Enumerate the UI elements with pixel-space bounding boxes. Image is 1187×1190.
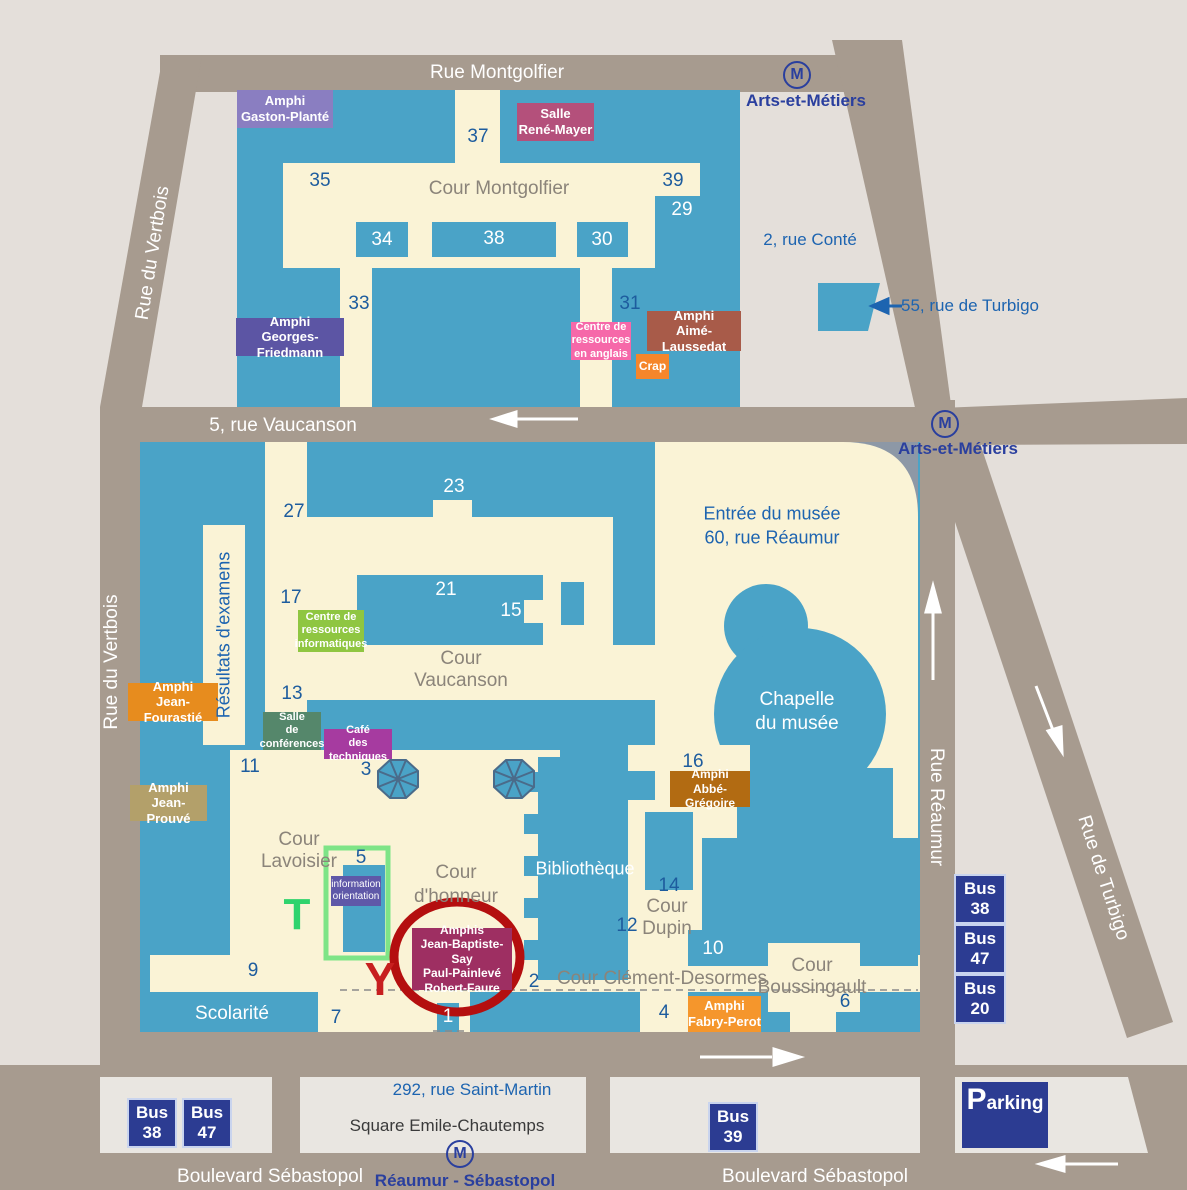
- label-cour-lavoisier-1: Cour: [278, 829, 319, 851]
- label-metro-arts-et-metiers-top: Arts-et-Métiers: [746, 91, 866, 111]
- venue-cafe-des-techniques: Cafédes techniques: [324, 729, 392, 759]
- bus-stop-38-right: Bus38: [954, 874, 1006, 924]
- bib-tooth-2: [524, 814, 540, 834]
- dome-base: [737, 768, 893, 838]
- number-3: 3: [361, 759, 372, 781]
- street-rue-du-vertbois-bottom: [100, 442, 140, 1068]
- label-cour-vaucanson-1: Cour: [440, 648, 481, 670]
- number-9: 9: [248, 960, 259, 982]
- number-34: 34: [371, 229, 392, 251]
- number-1: 1: [443, 1006, 454, 1028]
- label-scolarite: Scolarité: [195, 1003, 269, 1025]
- number-2: 2: [529, 971, 540, 993]
- venue-amphi-fabry-perot: AmphiFabry-Perot: [688, 996, 761, 1032]
- number-4: 4: [659, 1002, 670, 1024]
- label-boulevard-sebastopol-left: Boulevard Sébastopol: [177, 1166, 363, 1188]
- label-entree-musee-line1: Entrée du musée: [703, 504, 840, 525]
- number-30: 30: [591, 229, 612, 251]
- label-chapelle-1: Chapelle: [760, 689, 835, 711]
- label-metro-arts-et-metiers-mid: Arts-et-Métiers: [898, 439, 1018, 459]
- building-15-block: [561, 582, 584, 625]
- number-16: 16: [682, 751, 703, 773]
- number-31: 31: [619, 293, 640, 315]
- venue-amphi-jean-fourastie: AmphiJean-Fourastié: [128, 683, 218, 721]
- bus-stop-39-bottom: Bus39: [708, 1102, 758, 1152]
- label-chapelle-2: du musée: [755, 713, 838, 735]
- number-38: 38: [483, 228, 504, 250]
- marker-y: Y: [365, 952, 396, 1006]
- number-21: 21: [435, 579, 456, 601]
- number-27: 27: [283, 501, 304, 523]
- metro-icon-arts-et-metiers-top: M: [783, 61, 811, 89]
- venue-information-orientation: informationorientation: [331, 876, 381, 906]
- boussingault-tab: [790, 1012, 836, 1032]
- label-boulevard-sebastopol-right: Boulevard Sébastopol: [722, 1166, 908, 1188]
- bib-tooth-5: [524, 940, 540, 960]
- map-shapes: [0, 0, 1187, 1190]
- label-2-rue-conte: 2, rue Conté: [763, 230, 857, 250]
- parking-p: P: [966, 1082, 986, 1118]
- label-square-emile-chautemps: Square Emile-Chautemps: [350, 1116, 545, 1136]
- label-cour-montgolfier: Cour Montgolfier: [429, 178, 569, 200]
- marker-t: T: [284, 890, 311, 940]
- label-292-rue-saint-martin: 292, rue Saint-Martin: [393, 1080, 552, 1100]
- parking-badge: Parking: [962, 1082, 1048, 1148]
- label-cour-vaucanson-2: Vaucanson: [414, 670, 508, 692]
- sidewalk-bus-39: [610, 1077, 920, 1153]
- number-17: 17: [280, 587, 301, 609]
- metro-icon-reaumur-sebastopol: M: [446, 1140, 474, 1168]
- label-resultats-examens: Résultats d'examens: [214, 552, 235, 719]
- campus-map: Rue Montgolfier Rue du Vertbois Rue du V…: [0, 0, 1187, 1190]
- venue-amphi-georges-friedmann: AmphiGeorges-Friedmann: [236, 318, 344, 356]
- number-6: 6: [840, 991, 851, 1013]
- label-55-rue-de-turbigo: 55, rue de Turbigo: [901, 296, 1039, 316]
- number-39: 39: [662, 170, 683, 192]
- number-29: 29: [671, 199, 692, 221]
- label-cour-dupin-2: Dupin: [642, 918, 692, 940]
- label-cour-dupin-1: Cour: [646, 896, 687, 918]
- venue-amphis-say-painleve-faure: AmphisJean-Baptiste-SayPaul-PainlevéRobe…: [412, 928, 512, 990]
- bib-tooth-4: [524, 898, 540, 918]
- venue-amphi-gaston-plante: AmphiGaston-Planté: [237, 90, 333, 128]
- label-rue-du-vertbois-bottom: Rue du Vertbois: [101, 594, 123, 729]
- parking-rest: arking: [986, 1093, 1043, 1116]
- venue-centre-ressources-anglais: Centre deressourcesen anglais: [571, 322, 631, 360]
- number-23: 23: [443, 476, 464, 498]
- bus-stop-47-right: Bus47: [954, 924, 1006, 974]
- notch-15: [524, 600, 546, 623]
- corridor-27: [265, 442, 307, 723]
- label-cour-lavoisier-2: Lavoisier: [261, 851, 337, 873]
- number-15: 15: [500, 600, 521, 622]
- number-7: 7: [331, 1007, 342, 1029]
- label-cour-clement-desormes: Cour Clément-Desormes: [557, 968, 767, 990]
- bus-stop-38-bottom: Bus38: [127, 1098, 177, 1148]
- venue-salle-rene-mayer: SalleRené-Mayer: [517, 103, 594, 141]
- venue-amphi-aime-laussedat: AmphiAimé-Laussedat: [647, 311, 741, 351]
- number-14: 14: [658, 875, 679, 897]
- label-rue-montgolfier: Rue Montgolfier: [430, 62, 564, 84]
- label-cour-boussingault-1: Cour: [791, 955, 832, 977]
- street-south-of-campus: [140, 1032, 955, 1068]
- number-12: 12: [616, 915, 637, 937]
- label-rue-vaucanson: 5, rue Vaucanson: [209, 415, 357, 437]
- label-bibliotheque: Bibliothèque: [535, 859, 634, 880]
- venue-salle-de-conferences: Salledeconférences: [263, 712, 321, 750]
- vaucanson-top-band: [307, 517, 580, 575]
- metro-icon-arts-et-metiers-mid: M: [931, 410, 959, 438]
- venue-amphi-abbe-gregoire: AmphiAbbé-Grégoire: [670, 771, 750, 807]
- number-11: 11: [240, 756, 260, 778]
- venue-amphi-jean-prouve: AmphiJean-Prouvé: [130, 785, 207, 821]
- number-35: 35: [309, 170, 330, 192]
- number-10: 10: [702, 938, 723, 960]
- venue-crap: Crap: [636, 354, 669, 379]
- label-cour-honneur-2: d'honneur: [414, 886, 498, 908]
- bus-stop-47-bottom: Bus47: [182, 1098, 232, 1148]
- label-metro-reaumur-sebastopol: Réaumur - Sébastopol: [375, 1171, 555, 1190]
- bus-stop-20-right: Bus20: [954, 974, 1006, 1024]
- label-entree-musee-line2: 60, rue Réaumur: [704, 528, 839, 549]
- number-5: 5: [356, 847, 367, 869]
- label-cour-honneur-1: Cour: [435, 862, 476, 884]
- number-13: 13: [281, 683, 302, 705]
- label-rue-reaumur: Rue Réaumur: [925, 748, 947, 866]
- number-33: 33: [348, 293, 369, 315]
- venue-centre-ressources-informatiques: Centre deressourcesinformatiques: [298, 610, 364, 652]
- number-37: 37: [467, 126, 488, 148]
